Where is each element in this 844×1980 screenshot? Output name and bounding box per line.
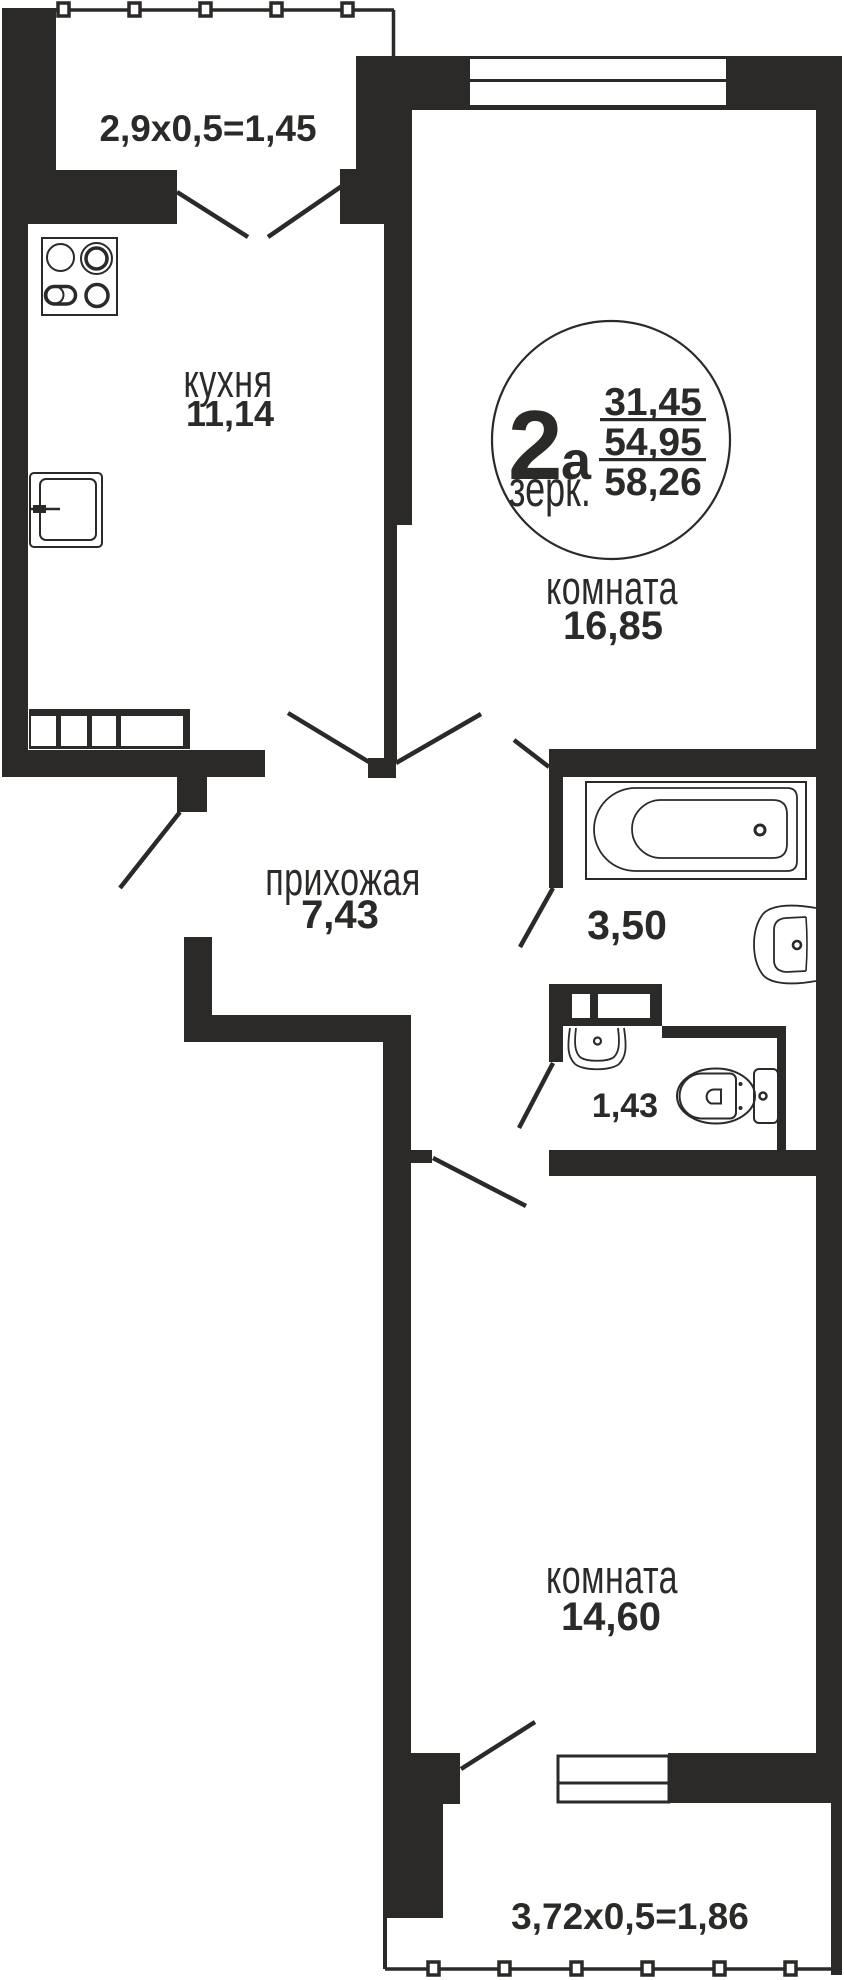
svg-text:7,43: 7,43 <box>301 893 379 937</box>
svg-text:16,85: 16,85 <box>563 604 663 648</box>
svg-text:2,9х0,5=1,45: 2,9х0,5=1,45 <box>99 108 316 149</box>
svg-text:зерк.: зерк. <box>509 461 591 517</box>
svg-text:11,14: 11,14 <box>186 393 274 434</box>
svg-text:3,50: 3,50 <box>587 902 667 948</box>
svg-text:3,72х0,5=1,86: 3,72х0,5=1,86 <box>511 1896 749 1937</box>
svg-text:14,60: 14,60 <box>561 1595 661 1639</box>
svg-text:58,26: 58,26 <box>604 461 702 504</box>
svg-text:31,45: 31,45 <box>604 381 702 424</box>
svg-text:54,95: 54,95 <box>604 421 702 464</box>
svg-text:1,43: 1,43 <box>592 1087 658 1125</box>
